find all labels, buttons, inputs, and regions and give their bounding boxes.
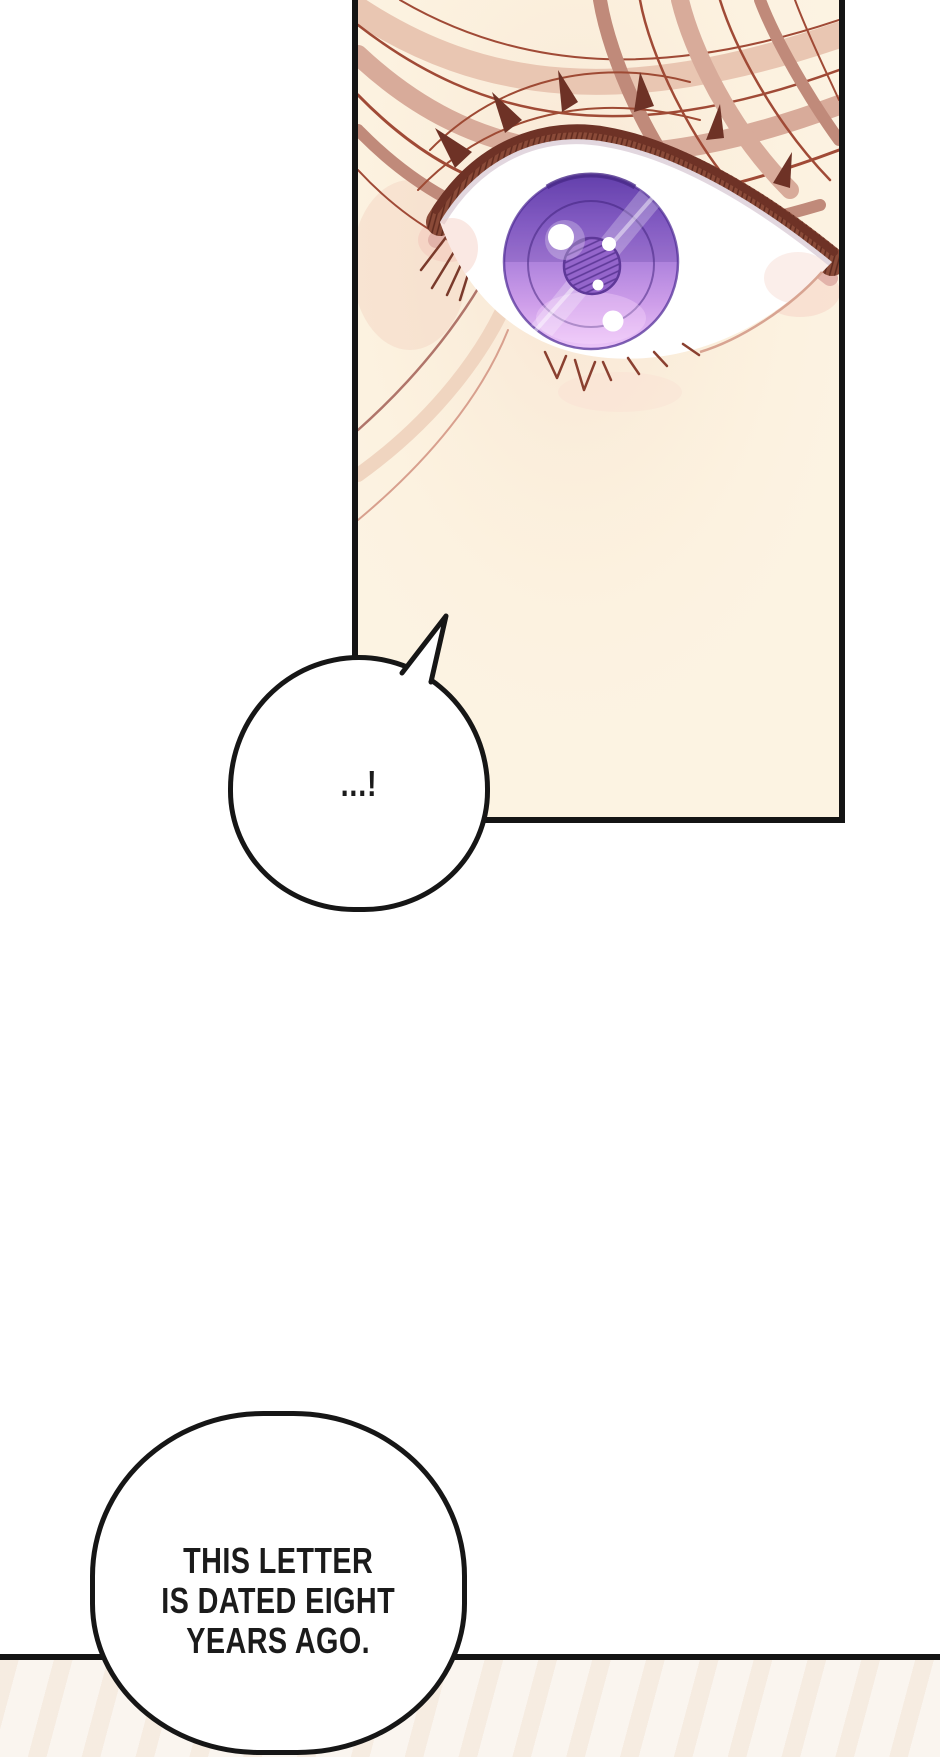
speech-bubble-large-text: THIS LETTER IS DATED EIGHT YEARS AGO.	[162, 1541, 396, 1661]
bubble-text-line: IS DATED EIGHT	[162, 1581, 396, 1621]
speech-bubble-tail	[392, 606, 454, 690]
bubble-text-line: THIS LETTER	[162, 1541, 396, 1581]
iris	[504, 175, 678, 349]
speech-bubble-small-text: ...!	[341, 763, 378, 805]
speech-bubble-small: ...!	[228, 655, 490, 912]
bubble-text-line: YEARS AGO.	[162, 1621, 396, 1661]
comic-page: ...! THIS LETTER IS DATED EIGHT YEARS AG…	[0, 0, 940, 1757]
speech-bubble-large: THIS LETTER IS DATED EIGHT YEARS AGO.	[90, 1411, 467, 1755]
